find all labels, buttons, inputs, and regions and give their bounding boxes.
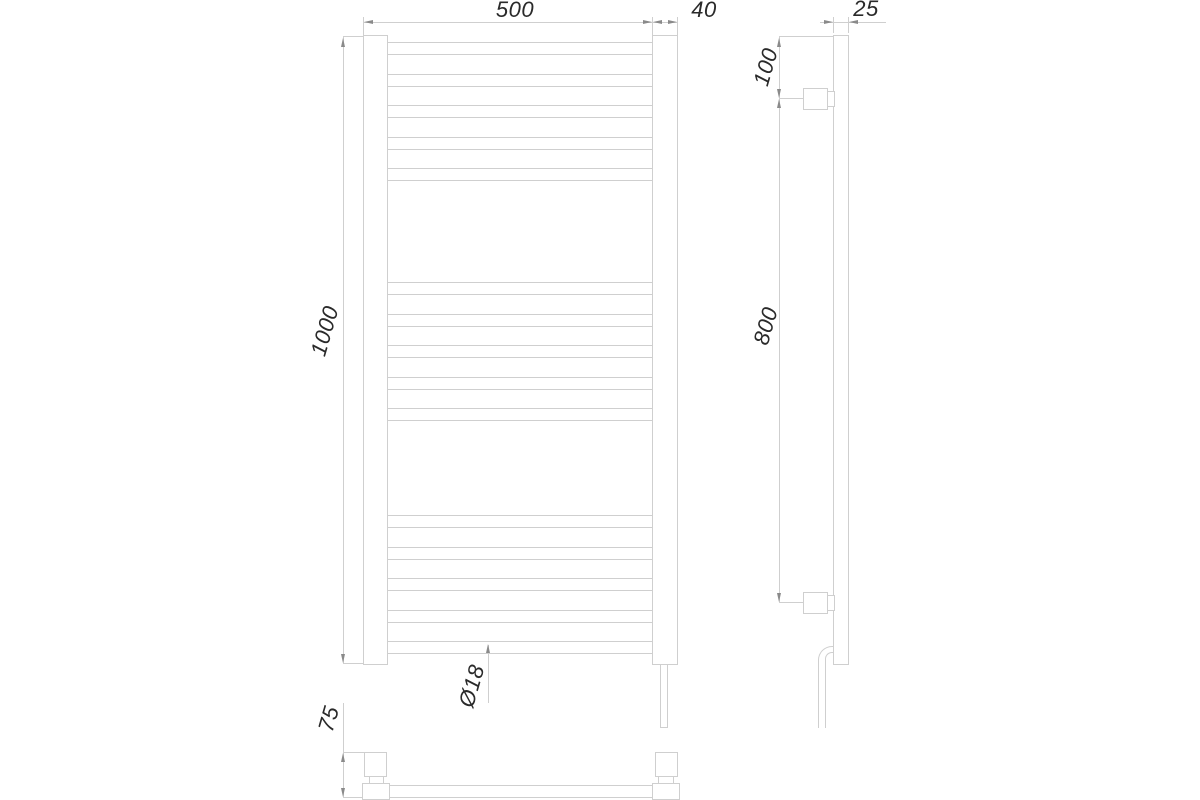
arrow-up (777, 99, 781, 108)
side-bracket-bottom (803, 592, 828, 614)
plan-right-bracket-neck (658, 776, 674, 784)
tube (387, 377, 652, 390)
tube (387, 74, 652, 87)
tube (387, 610, 652, 623)
arrow-down (341, 788, 345, 797)
tube (387, 314, 652, 327)
tube (387, 515, 652, 528)
tube (387, 547, 652, 560)
ext-line (779, 36, 833, 37)
tube (387, 578, 652, 591)
ext-line (343, 752, 364, 753)
plan-left-bracket (364, 752, 387, 777)
drawing-canvas: 500 40 1000 Ø18 25 (0, 0, 1200, 800)
ext-line (343, 797, 362, 798)
front-right-collector (652, 35, 678, 665)
front-power-cable (660, 664, 668, 728)
tube (387, 408, 652, 421)
dim-line-wall-offset (343, 703, 344, 798)
arrow-down (777, 593, 781, 602)
plan-left-bracket-neck (369, 776, 384, 784)
dim-label-wall-offset: 75 (313, 703, 345, 735)
dim-line-height (343, 37, 344, 664)
ext-line (833, 17, 834, 33)
plan-right-bracket (655, 752, 678, 777)
ext-line (779, 98, 803, 99)
dim-label-tube-diameter: Ø18 (454, 662, 491, 711)
tube (387, 641, 652, 654)
arrow-down (341, 654, 345, 663)
tube (387, 168, 652, 181)
side-power-cable-inner (825, 652, 834, 728)
plan-right-collector (652, 783, 680, 800)
tube (387, 345, 652, 358)
dim-label-collector-width: 40 (691, 0, 716, 23)
arrow-up (486, 644, 490, 653)
arrow-left (364, 20, 373, 24)
tube (387, 137, 652, 150)
ext-line (343, 663, 364, 664)
arrow-left (653, 20, 662, 24)
arrow-down (777, 89, 781, 98)
arrow-up (341, 38, 345, 47)
ext-line (779, 602, 803, 603)
dim-line-bracket-span (779, 98, 780, 602)
tube (387, 42, 652, 55)
plan-tube (389, 785, 652, 798)
arrow-right (824, 20, 833, 24)
dim-label-overall-width: 500 (496, 0, 534, 23)
front-left-collector (363, 35, 388, 665)
arrow-right (643, 20, 652, 24)
side-profile (833, 35, 849, 665)
arrow-right (668, 20, 677, 24)
tube (387, 282, 652, 295)
arrow-up (341, 753, 345, 762)
side-bracket-top (803, 88, 828, 110)
tube (387, 105, 652, 118)
ext-line (343, 36, 364, 37)
plan-left-collector (362, 783, 390, 800)
ext-line (677, 17, 678, 35)
dim-label-overall-height: 1000 (305, 303, 344, 359)
dim-label-profile-depth: 25 (853, 0, 878, 22)
arrow-up (777, 38, 781, 47)
